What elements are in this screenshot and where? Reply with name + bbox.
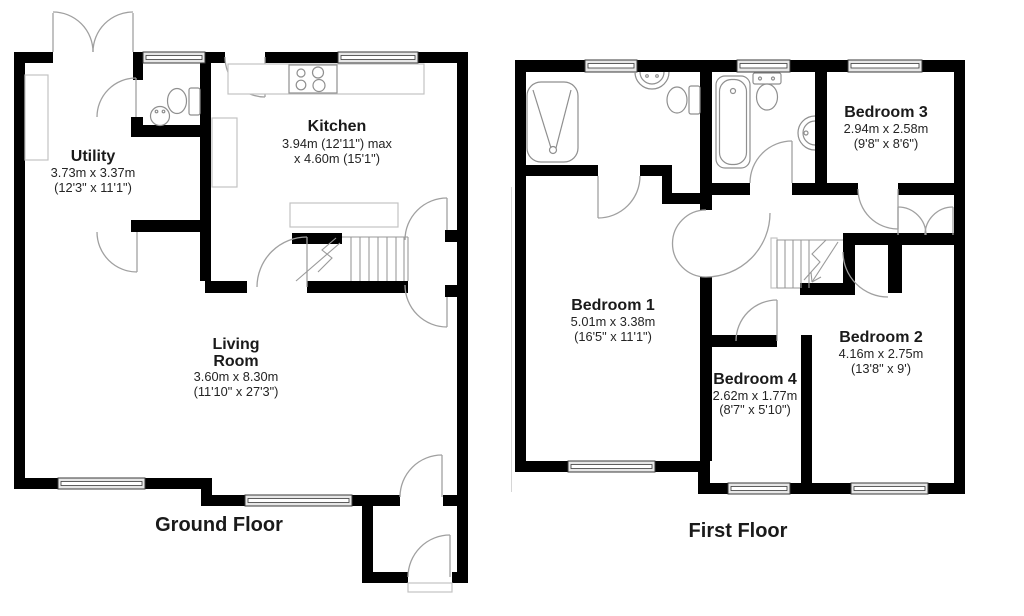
window-icon — [848, 60, 922, 72]
room-label-living-room-line2: Room — [213, 353, 258, 370]
staircase-icon — [771, 238, 843, 288]
room-dims-bedroom-4-metric: 2.62m x 1.77m — [713, 388, 798, 403]
basin-icon — [798, 116, 815, 150]
floor-label-ground: Ground Floor — [155, 514, 283, 536]
front-door-step-icon — [408, 583, 452, 592]
room-dims-kitchen-imperial: x 4.60m (15'1") — [294, 151, 380, 166]
basin-icon — [635, 72, 669, 89]
window-icon — [143, 52, 205, 63]
room-dims-bedroom-3-metric: 2.94m x 2.58m — [844, 121, 929, 136]
room-dims-bedroom-4-imperial: (8'7" x 5'10") — [719, 402, 791, 417]
room-dims-bedroom-3-imperial: (9'8" x 8'6") — [854, 136, 918, 151]
first-floor-labels: Bedroom 1 5.01m x 3.38m (16'5" x 11'1") … — [571, 104, 929, 542]
room-dims-utility-metric: 3.73m x 3.37m — [51, 165, 136, 180]
front-door-icon — [408, 535, 450, 577]
room-label-kitchen: Kitchen — [308, 118, 367, 135]
first-floor-fixtures — [527, 72, 843, 288]
toilet-icon — [753, 73, 781, 110]
door-arc-icon — [598, 176, 640, 218]
door-arc-icon — [750, 141, 792, 183]
room-label-bedroom-1: Bedroom 1 — [571, 297, 655, 314]
room-dims-utility-imperial: (12'3" x 11'1") — [54, 180, 132, 195]
window-icon — [728, 483, 790, 494]
room-dims-kitchen-metric: 3.94m (12'11") max — [282, 136, 392, 151]
window-icon — [245, 495, 352, 506]
door-arc-icon — [858, 189, 898, 229]
door-arc-icon — [400, 455, 442, 497]
bath-icon — [716, 76, 750, 168]
room-label-bedroom-2: Bedroom 2 — [839, 329, 923, 346]
door-arc-icon — [736, 300, 777, 341]
toilet-icon — [168, 88, 201, 115]
room-label-living-room-line1: Living — [212, 336, 259, 353]
floor-label-first: First Floor — [689, 520, 788, 542]
french-doors-icon — [53, 12, 133, 52]
room-dims-living-room-metric: 3.60m x 8.30m — [194, 369, 279, 384]
room-dims-living-room-imperial: (11'10" x 27'3") — [194, 384, 279, 399]
room-label-bedroom-4: Bedroom 4 — [713, 371, 797, 388]
room-dims-bedroom-1-metric: 5.01m x 3.38m — [571, 314, 656, 329]
room-dims-bedroom-2-imperial: (13'8" x 9') — [851, 361, 911, 376]
ground-floor-doors — [53, 12, 450, 577]
window-icon — [737, 60, 790, 72]
room-dims-bedroom-1-imperial: (16'5" x 11'1") — [574, 329, 652, 344]
room-label-utility: Utility — [71, 148, 116, 165]
room-label-bedroom-3: Bedroom 3 — [844, 104, 928, 121]
door-arc-icon — [97, 78, 136, 117]
ground-floor-plan: Utility 3.73m x 3.37m (12'3" x 11'1") Ki… — [14, 12, 468, 592]
cupboard-doors-icon — [898, 207, 953, 235]
shower-icon — [527, 82, 578, 162]
first-floor-plan: Bedroom 1 5.01m x 3.38m (16'5" x 11'1") … — [512, 60, 966, 542]
hob-icon — [289, 65, 337, 93]
hand-basin-icon — [151, 107, 170, 126]
window-icon — [58, 478, 145, 489]
room-dims-bedroom-2-metric: 4.16m x 2.75m — [839, 346, 924, 361]
double-swing-door-icon — [673, 210, 771, 277]
window-icon — [851, 483, 928, 494]
window-icon — [338, 52, 418, 63]
door-arc-icon — [97, 232, 137, 272]
door-arc-icon — [257, 237, 307, 287]
double-swing-door-icon — [405, 198, 447, 327]
floorplan-page: Utility 3.73m x 3.37m (12'3" x 11'1") Ki… — [0, 0, 1024, 616]
window-icon — [568, 461, 655, 472]
floorplan-drawing: Utility 3.73m x 3.37m (12'3" x 11'1") Ki… — [0, 0, 1024, 616]
window-icon — [585, 60, 637, 72]
toilet-icon — [667, 86, 700, 114]
ground-floor-walls — [14, 52, 468, 583]
